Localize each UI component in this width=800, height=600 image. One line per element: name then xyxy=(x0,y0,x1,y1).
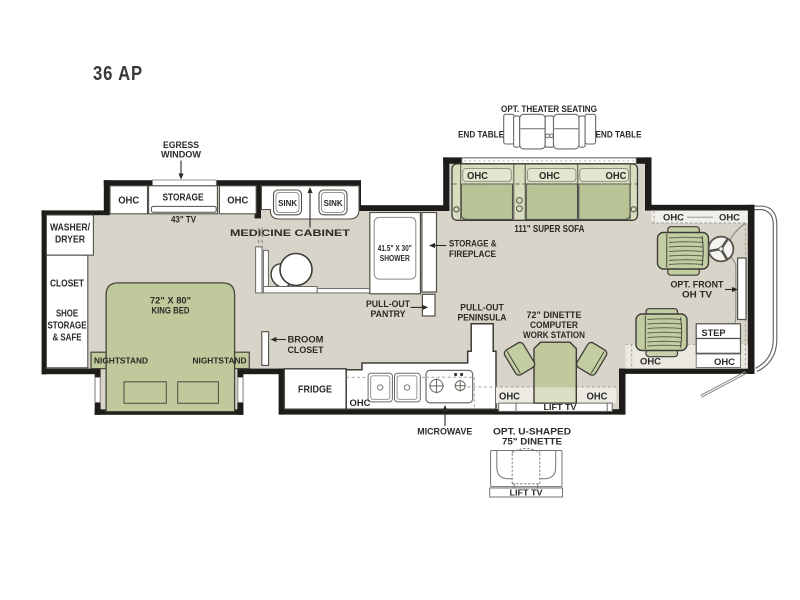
svg-text:OPT. THEATER SEATING: OPT. THEATER SEATING xyxy=(501,104,597,115)
svg-text:75" DINETTE: 75" DINETTE xyxy=(502,437,562,448)
svg-text:FIREPLACE: FIREPLACE xyxy=(449,249,496,260)
svg-text:OHC: OHC xyxy=(118,195,139,206)
svg-text:OHC: OHC xyxy=(587,392,608,403)
svg-text:SINK: SINK xyxy=(278,198,298,208)
svg-text:WASHER/: WASHER/ xyxy=(50,223,90,234)
svg-text:111" SUPER SOFA: 111" SUPER SOFA xyxy=(514,224,584,235)
svg-text:OHC: OHC xyxy=(640,357,662,367)
svg-text:FRIDGE: FRIDGE xyxy=(298,384,332,395)
svg-text:36 AP: 36 AP xyxy=(93,63,143,85)
svg-text:OHC: OHC xyxy=(350,398,372,408)
svg-text:WINDOW: WINDOW xyxy=(161,150,201,161)
svg-text:41.5" X 30": 41.5" X 30" xyxy=(378,244,412,253)
svg-text:& SAFE: & SAFE xyxy=(53,332,82,343)
svg-text:PANTRY: PANTRY xyxy=(371,309,407,320)
svg-text:SHOWER: SHOWER xyxy=(380,254,410,263)
svg-text:MEDICINE CABINET: MEDICINE CABINET xyxy=(230,228,350,239)
svg-text:OHC: OHC xyxy=(719,212,741,222)
svg-text:OH TV: OH TV xyxy=(682,290,713,301)
svg-text:DRYER: DRYER xyxy=(55,235,86,246)
svg-text:NIGHTSTAND: NIGHTSTAND xyxy=(193,356,247,366)
svg-text:STEP: STEP xyxy=(702,328,727,339)
svg-text:END TABLE: END TABLE xyxy=(596,130,642,141)
svg-text:WORK STATION: WORK STATION xyxy=(523,330,585,341)
svg-text:OHC: OHC xyxy=(499,392,520,403)
svg-text:OHC: OHC xyxy=(539,171,560,182)
svg-text:LIFT TV: LIFT TV xyxy=(544,403,578,412)
svg-text:OHC: OHC xyxy=(467,171,488,182)
svg-text:SHOE: SHOE xyxy=(56,308,78,319)
svg-text:OHC: OHC xyxy=(714,357,736,367)
svg-text:SINK: SINK xyxy=(324,198,344,208)
svg-text:LIFT TV: LIFT TV xyxy=(510,488,544,497)
svg-text:MICROWAVE: MICROWAVE xyxy=(417,427,472,438)
svg-text:OHC: OHC xyxy=(606,171,627,182)
svg-text:CLOSET: CLOSET xyxy=(50,278,84,289)
svg-text:43" TV: 43" TV xyxy=(171,215,196,225)
svg-text:END TABLE: END TABLE xyxy=(458,130,504,141)
svg-text:NIGHTSTAND: NIGHTSTAND xyxy=(94,356,148,366)
svg-text:STORAGE &: STORAGE & xyxy=(449,238,497,249)
svg-text:KING BED: KING BED xyxy=(152,306,190,317)
svg-text:OHC: OHC xyxy=(663,212,685,222)
svg-text:CLOSET: CLOSET xyxy=(288,345,324,356)
svg-text:STORAGE: STORAGE xyxy=(48,320,87,331)
svg-text:STORAGE: STORAGE xyxy=(163,192,204,203)
svg-text:PENINSULA: PENINSULA xyxy=(458,313,507,324)
svg-text:OHC: OHC xyxy=(227,195,248,206)
